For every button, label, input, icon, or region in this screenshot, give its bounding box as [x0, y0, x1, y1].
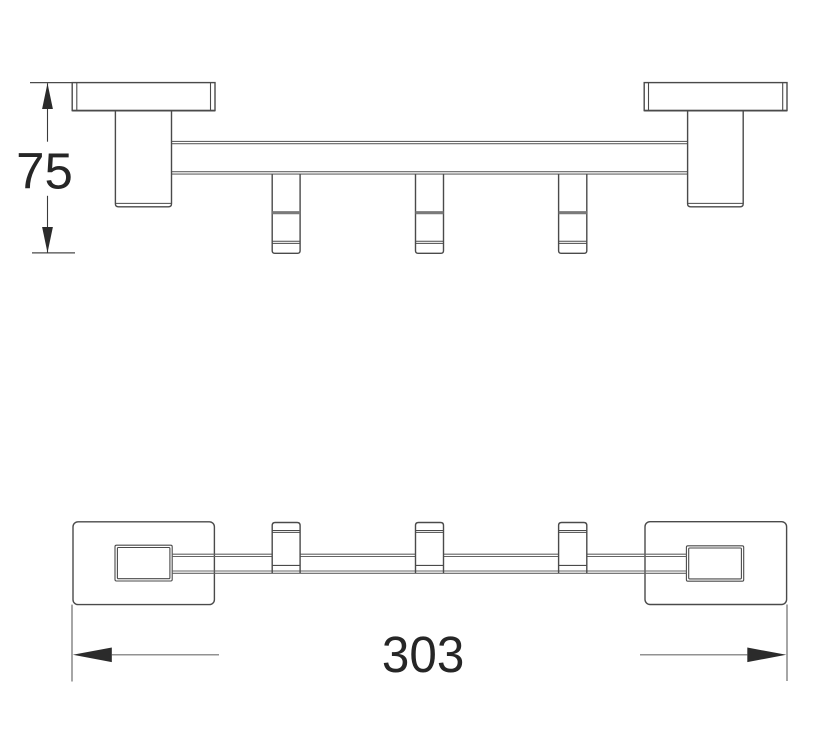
svg-text:75: 75: [16, 143, 73, 200]
svg-text:303: 303: [382, 626, 464, 683]
